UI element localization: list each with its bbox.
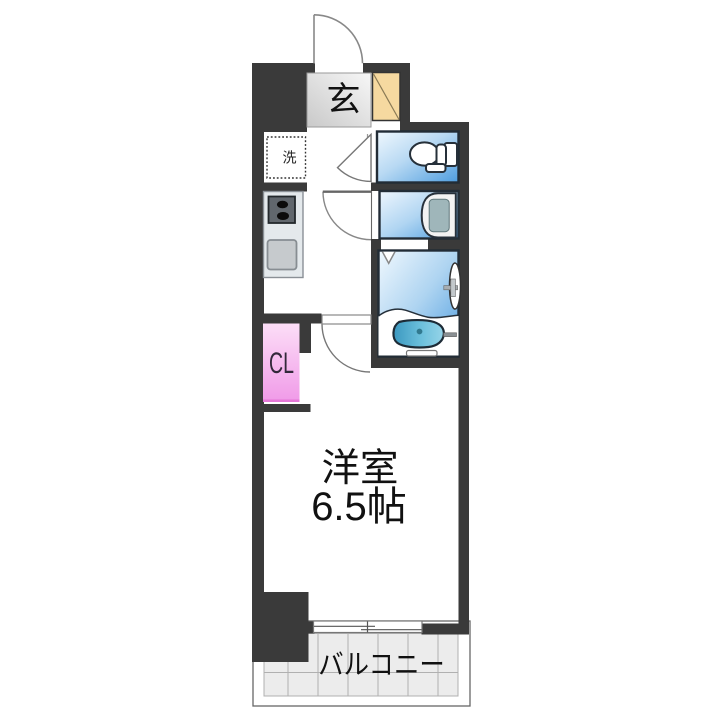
svg-text:CL: CL <box>269 347 294 380</box>
svg-text:洋室: 洋室 <box>321 447 398 490</box>
svg-text:バルコニー: バルコニー <box>318 649 445 680</box>
svg-text:洗: 洗 <box>283 150 297 166</box>
svg-text:6.5帖: 6.5帖 <box>311 485 407 529</box>
svg-text:玄: 玄 <box>327 81 361 119</box>
